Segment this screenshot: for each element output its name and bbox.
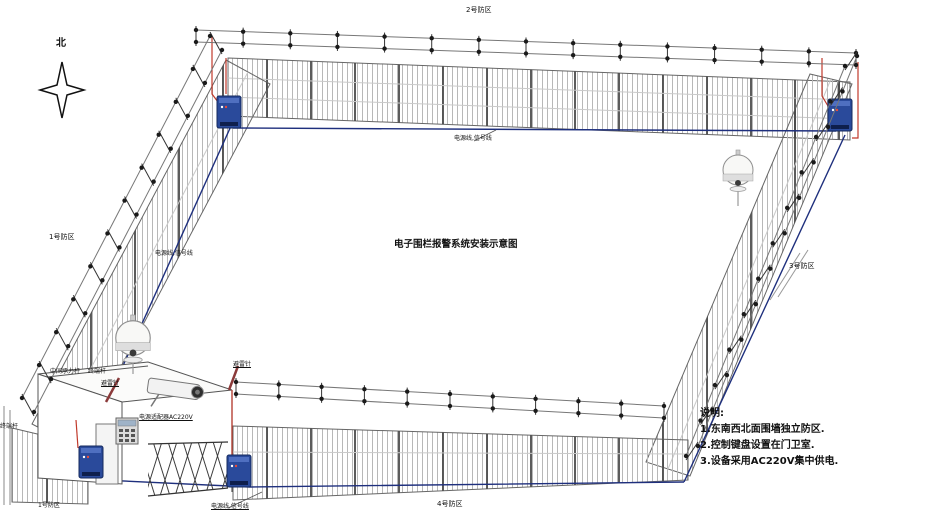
retractable-gate: [148, 442, 228, 496]
mid-pole-label: 中间承力杆: [50, 369, 80, 376]
fence-wall-south: [233, 426, 688, 500]
cable-label-left: 电源线,信号线: [155, 251, 193, 258]
zone-label-4: 4号防区: [437, 501, 462, 509]
compass-star: [40, 62, 84, 118]
lightning-rod-bottom-label: 避雷针: [233, 362, 251, 369]
fence-controller-4: [227, 455, 251, 487]
dome-camera-east: [723, 150, 753, 206]
terminal-pole-left-label: 终端杆: [0, 424, 18, 431]
corner-line: [778, 250, 808, 297]
fence-wall-north: [228, 58, 850, 140]
zone-label-1-gate: 1号防区: [38, 503, 60, 510]
zone-label-3: 3号防区: [789, 263, 814, 271]
compass-north-label: 北: [56, 38, 66, 49]
fence-controller-1: [217, 96, 241, 128]
zone-label-2: 2号防区: [466, 7, 491, 15]
diagram-canvas: 电子围栏报警系统安装示意图 北 2号防区 1号防区 3号防区 4号防区 1号防区…: [0, 0, 930, 522]
notes-heading: 说明:: [700, 408, 724, 419]
note-item-1: 1.东南西北面围墙独立防区.: [700, 424, 825, 435]
diagram-title: 电子围栏报警系统安装示意图: [394, 240, 518, 250]
terminal-pole-label: 终端杆: [88, 369, 106, 376]
power-adapter-label: 电源适配器AC220V: [139, 415, 193, 422]
note-item-3: 3.设备采用AC220V集中供电.: [700, 456, 838, 467]
note-item-2: 2.控制键盘设置在门卫室.: [700, 440, 815, 451]
control-keypad: [116, 418, 138, 444]
fence-controller-3: [79, 446, 103, 478]
cable-label-bottom: 电源线,信号线: [211, 504, 249, 511]
lightning-rod: [229, 366, 238, 390]
lightning-rod-gate-label: 避雷针: [101, 381, 119, 388]
zone-label-1: 1号防区: [49, 234, 74, 242]
cable-label-top: 电源线,信号线: [454, 136, 492, 143]
